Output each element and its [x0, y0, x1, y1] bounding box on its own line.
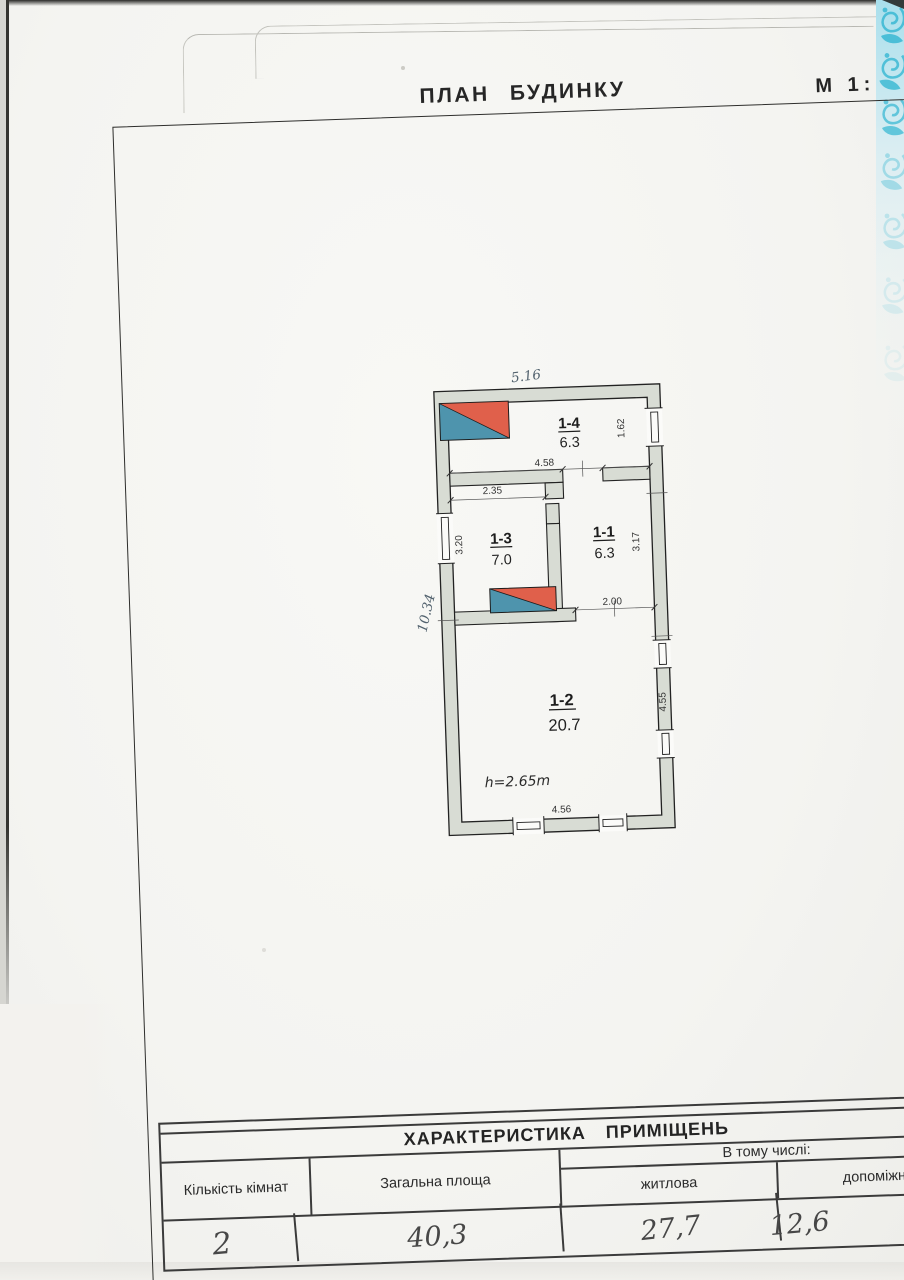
- dim-3-20: 3.20: [454, 535, 466, 555]
- stove-symbol: [439, 401, 509, 440]
- room-1-2-area: 20.7: [548, 716, 581, 735]
- room-1-3-area: 7.0: [491, 552, 512, 569]
- room-1-1-label: 1-1: [593, 524, 615, 542]
- dim-4-55: 4.55: [657, 692, 669, 712]
- value-room-count: 2: [147, 1213, 300, 1274]
- header-room-count: Кількість кімнат: [162, 1159, 313, 1220]
- room-1-4-area: 6.3: [559, 435, 580, 452]
- scanned-document-page: ПЛАН БУДИНКУ М 1:: [0, 0, 904, 1280]
- header-total-area: Загальна площа: [311, 1150, 563, 1215]
- characteristics-table: ХАРАКТЕРИСТИКА ПРИМІЩЕНЬ Кількість кімна…: [158, 1094, 904, 1271]
- room-1-2-label: 1-2: [549, 691, 573, 710]
- dim-2-35: 2.35: [482, 485, 502, 497]
- ceiling-height-note: h=2.65m: [485, 773, 551, 791]
- dim-5-16-handwritten: 5.16: [510, 367, 542, 387]
- dim-2-00: 2.00: [602, 596, 622, 608]
- room-1-3-label: 1-3: [490, 530, 512, 548]
- room-1-4-label: 1-4: [558, 415, 581, 433]
- dim-3-17: 3.17: [631, 531, 643, 551]
- dim-4-58: 4.58: [534, 458, 554, 470]
- dim-4-56: 4.56: [552, 804, 572, 816]
- document-content: ПЛАН БУДИНКУ М 1:: [0, 0, 904, 1280]
- room-1-1-area: 6.3: [594, 546, 615, 563]
- page-title: ПЛАН БУДИНКУ: [419, 78, 626, 109]
- dim-1-62: 1.62: [616, 418, 628, 438]
- scale-label: М 1:: [815, 73, 876, 98]
- stove-symbol: [490, 587, 557, 613]
- dim-10-34-handwritten: 10.34: [415, 592, 439, 633]
- floor-plan: 1-4 6.3 1-3 7.0 1-1 6.3 1-2 20.7 h=2.65m…: [370, 344, 688, 874]
